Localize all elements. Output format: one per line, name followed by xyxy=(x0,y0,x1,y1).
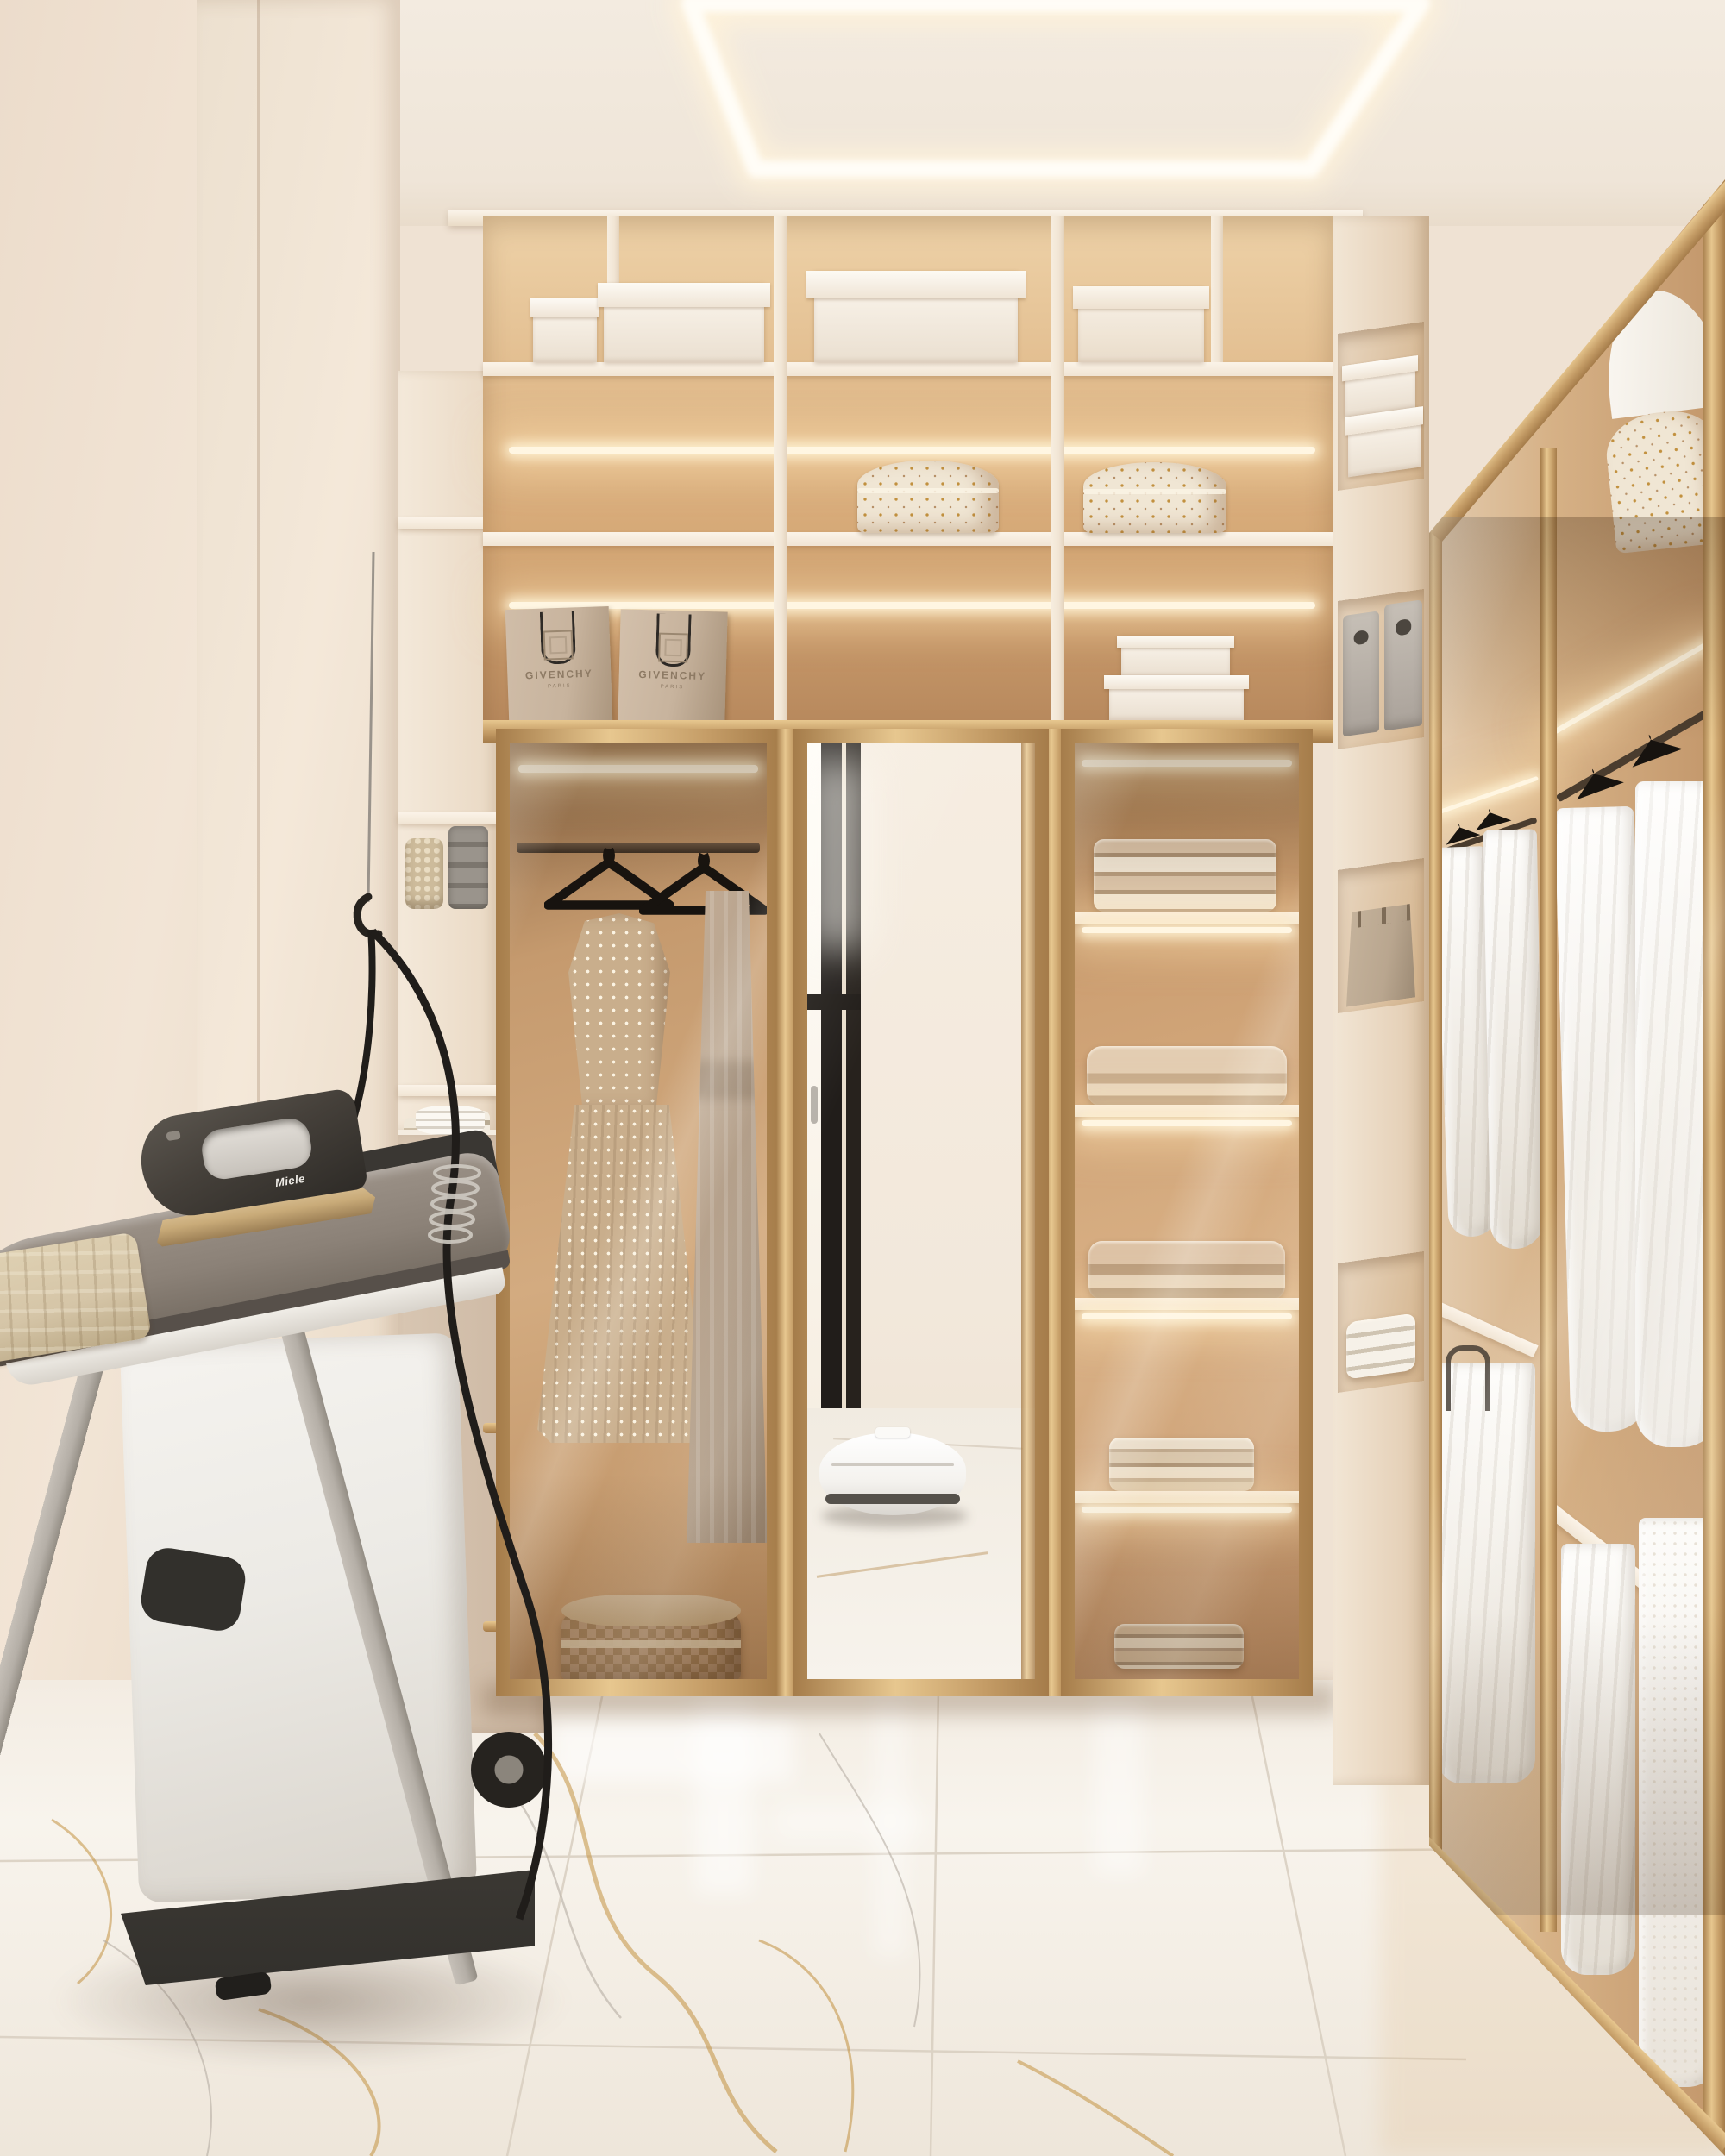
stacked-box xyxy=(1109,675,1244,720)
storage-box xyxy=(814,271,1018,362)
box-lid xyxy=(1104,675,1249,689)
box-lid xyxy=(806,271,1026,298)
walk-in-closet-scene: GIVENCHY PARIS GIVENCHY PARIS xyxy=(0,0,1725,2156)
back-shelving-unit: GIVENCHY PARIS GIVENCHY PARIS xyxy=(483,216,1333,743)
cubby-shelf xyxy=(398,1085,499,1096)
reflected-gold-edge xyxy=(1021,743,1035,1679)
glass-cabinet-linens xyxy=(1061,729,1313,1696)
bag-brand-text: GIVENCHY xyxy=(507,667,611,682)
corner-shelf-column xyxy=(1333,216,1429,1785)
tote-handle xyxy=(1358,891,1385,927)
gold-framed-mirror xyxy=(793,729,1049,1696)
basket-handle-slot xyxy=(1396,619,1411,636)
wardrobe-glass-reflection xyxy=(1427,517,1725,1915)
bag-city-text: PARIS xyxy=(508,682,612,691)
shelf-recess xyxy=(1338,858,1424,1013)
shelf-recess xyxy=(1338,589,1424,749)
led-glow xyxy=(690,5,1421,171)
hat-box-lid-seam xyxy=(857,488,999,493)
shelf-recess xyxy=(1338,322,1424,491)
lv-monogram-hat-box xyxy=(1083,462,1226,533)
cabinet-panel-line xyxy=(257,0,260,1164)
shelf-divider xyxy=(1051,216,1064,743)
hat-box-lid-seam xyxy=(1083,489,1226,494)
givenchy-shopping-bag: GIVENCHY PARIS xyxy=(618,609,727,724)
givenchy-4g-logo xyxy=(543,630,574,660)
storage-box xyxy=(1348,407,1421,478)
felt-basket xyxy=(1384,599,1422,730)
felt-basket xyxy=(1343,611,1379,736)
shelf-divider xyxy=(1211,216,1223,362)
storage-box xyxy=(1078,286,1204,362)
mirror-sheen xyxy=(807,743,1035,1679)
basket-handle-slot xyxy=(1354,630,1369,646)
lv-monogram-hat-box xyxy=(857,461,999,533)
box-lid xyxy=(598,283,771,307)
givenchy-4g-logo xyxy=(658,633,688,663)
shelf-divider xyxy=(774,216,787,743)
bag-city-text: PARIS xyxy=(618,683,725,691)
cubby-shelf xyxy=(398,812,499,824)
shelf-recess xyxy=(1338,1251,1424,1393)
folded-white-stack xyxy=(1346,1313,1415,1379)
box-lid xyxy=(1117,636,1234,648)
storage-box xyxy=(604,283,764,362)
floor-light-reflections xyxy=(552,1690,1144,1958)
rear-wheel xyxy=(471,1732,547,1808)
cabinet-interior xyxy=(510,743,767,1679)
box-lid xyxy=(1342,355,1419,381)
box-lid xyxy=(530,298,599,317)
shelf-board xyxy=(483,362,1333,376)
shelf-led-strip xyxy=(509,602,1315,609)
linen-interior xyxy=(1075,743,1299,1679)
iron-steam-button xyxy=(166,1131,180,1141)
shelf-led-strip xyxy=(509,447,1315,454)
storage-box xyxy=(533,298,597,362)
stacked-box xyxy=(1121,636,1230,677)
glass-door-reflection xyxy=(510,743,767,1679)
bag-brand-text: GIVENCHY xyxy=(619,667,726,682)
woven-rolls xyxy=(405,838,443,909)
mirror-face xyxy=(807,743,1035,1679)
tote-handle xyxy=(1383,887,1410,924)
givenchy-shopping-bag: GIVENCHY PARIS xyxy=(505,606,613,724)
glass-door-reflection xyxy=(1075,743,1299,1679)
box-lid xyxy=(1073,286,1209,309)
shelf-board xyxy=(483,532,1333,546)
rolled-towels-gray xyxy=(448,826,488,909)
tote-bag xyxy=(1346,890,1415,1006)
